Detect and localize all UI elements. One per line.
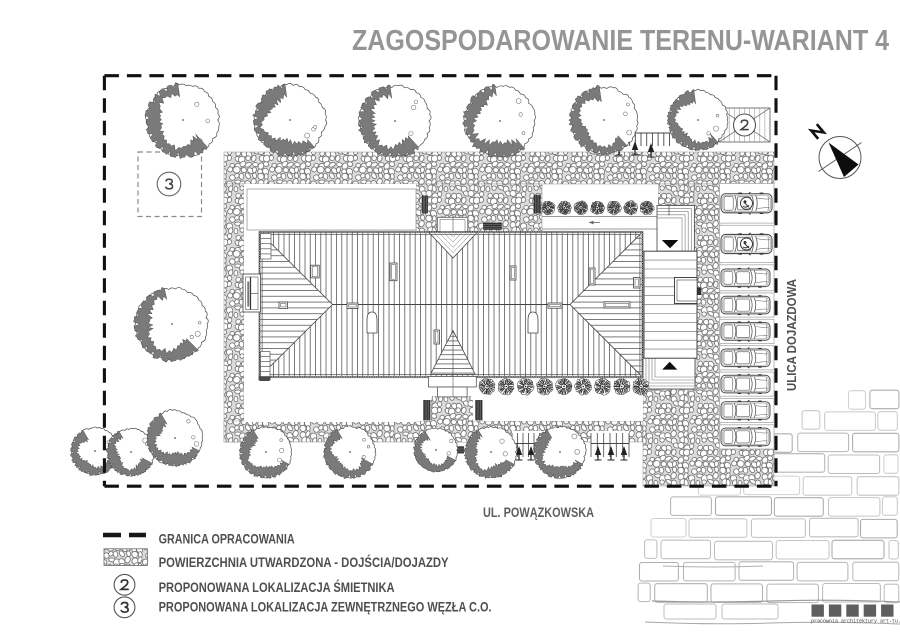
svg-text:ZAGOSPODAROWANIE TERENU-WARIAN: ZAGOSPODAROWANIE TERENU-WARIANT 4 [352, 25, 889, 57]
svg-text:UL. POWĄZKOWSKA: UL. POWĄZKOWSKA [483, 504, 594, 520]
svg-text:PROPONOWANA LOKALIZACJA ZEWNĘT: PROPONOWANA LOKALIZACJA ZEWNĘTRZNEGO WĘZ… [159, 599, 492, 614]
svg-text:POWIERZCHNIA UTWARDZONA - DOJŚ: POWIERZCHNIA UTWARDZONA - DOJŚCIA/DOJAZD… [159, 555, 449, 570]
svg-text:GRANICA OPRACOWANIA: GRANICA OPRACOWANIA [159, 532, 295, 547]
svg-text:pracownia architektury art-tu.: pracownia architektury art-tu. [811, 619, 900, 625]
svg-text:PROPONOWANA LOKALIZACJA ŚMIETN: PROPONOWANA LOKALIZACJA ŚMIETNIKA [159, 580, 395, 595]
svg-text:ULICA DOJAZDOWA: ULICA DOJAZDOWA [785, 279, 799, 391]
